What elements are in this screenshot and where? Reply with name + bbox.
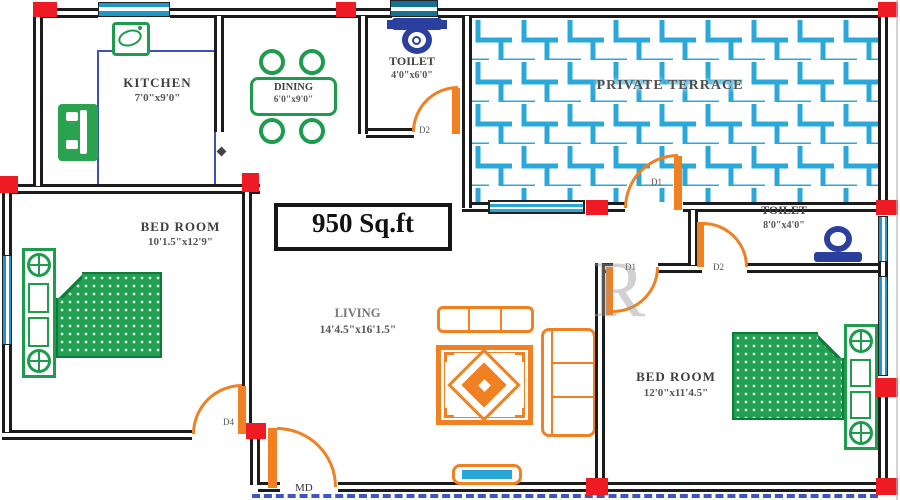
wall-junction-marker (876, 378, 898, 397)
wall-segment (747, 263, 878, 273)
wc-bowl-center (412, 36, 421, 45)
wall-segment (33, 16, 43, 186)
mattress-fold-corner (56, 272, 82, 298)
sofa-seat-line (551, 331, 553, 434)
boundary-dashed-line (252, 494, 878, 498)
living-dims: 14'4.5"x16'1.5" (293, 324, 423, 337)
wall-junction-marker (878, 2, 898, 17)
headboard-cell (850, 359, 871, 387)
door-label: D2 (712, 263, 725, 272)
bed-pillow-icon (849, 329, 873, 353)
wall-segment (462, 16, 472, 208)
wall-junction-marker (336, 2, 356, 17)
sofa-icon (437, 306, 534, 333)
sofa-cushion-divider (468, 308, 470, 331)
terrace-sliding-window (488, 200, 585, 214)
main-door-swing-arc (277, 427, 337, 487)
wc-tank-ear (387, 20, 393, 29)
living-label: LIVING (315, 307, 400, 321)
wall-segment (606, 482, 878, 492)
headboard-cell (850, 391, 871, 419)
wall-junction-marker (0, 176, 18, 193)
bedroom-right-window (878, 276, 888, 376)
wall-segment (878, 16, 888, 204)
bed-pillow-icon (27, 349, 51, 373)
image-edge (896, 0, 898, 500)
tv-screen (462, 470, 512, 479)
door-label: D2 (418, 126, 431, 135)
wall-junction-marker (876, 478, 898, 495)
wc-tank-ear (441, 20, 447, 29)
wall-segment (250, 439, 260, 485)
toilet-top-dims: 4'0"x6'0" (372, 70, 452, 81)
rug-corner-bracket (444, 408, 454, 418)
kitchen-dims: 7'0"x9'0" (100, 92, 215, 104)
wc-bowl-icon (824, 226, 852, 252)
wall-junction-marker (586, 200, 608, 215)
wall-segment (214, 16, 224, 132)
dining-dims: 6'0"x9'0" (252, 95, 335, 105)
toilet-top-label: TOILET (372, 55, 452, 68)
rug-corner-bracket (515, 352, 525, 362)
wall-segment (2, 192, 12, 256)
door-label: D1 (650, 178, 663, 187)
wall-segment (606, 202, 625, 212)
bedroom-left-window (2, 255, 12, 345)
kitchen-window (98, 2, 170, 17)
mattress-fold-corner (818, 332, 844, 358)
bedroom-left-label: BED ROOM (118, 220, 243, 234)
sofa-cushion-divider (500, 308, 502, 331)
kitchen-counter-line (97, 50, 216, 186)
stove-detail (80, 110, 87, 154)
marker-dot (217, 147, 227, 157)
dining-chair-icon (299, 49, 325, 75)
wall-segment (358, 16, 368, 134)
toilet-right-window (878, 216, 888, 262)
wall-junction-marker (242, 173, 259, 192)
headboard-cell (28, 317, 49, 347)
stove-detail (66, 140, 78, 149)
dining-chair-icon (259, 49, 285, 75)
toilet-top-window (390, 0, 438, 17)
kitchen-stove-icon (58, 104, 98, 161)
wall-segment (2, 344, 12, 432)
wall-segment (438, 8, 878, 18)
bed-pillow-icon (27, 253, 51, 277)
dining-label: DINING (252, 82, 335, 94)
bedroom-left-dims: 10'1.5"x12'9" (118, 236, 243, 248)
area-label: 950 Sq.ft (274, 209, 452, 239)
rug-corner-bracket (515, 408, 525, 418)
sofa-cushion-divider (553, 396, 594, 398)
watermark: R (592, 250, 645, 330)
toilet-right-dims: 8'0"x4'0" (742, 220, 826, 231)
wall-junction-marker (33, 2, 57, 17)
dining-chair-icon (259, 118, 285, 144)
wall-junction-marker (586, 478, 608, 495)
dining-chair-icon (299, 118, 325, 144)
headboard-cell (28, 283, 49, 313)
door-label: D4 (222, 418, 235, 427)
wall-segment (2, 430, 192, 440)
bedroom-right-dims: 12'0"x11'4.5" (616, 387, 736, 399)
main-door-leaf (268, 428, 277, 488)
bedroom-right-label: BED ROOM (616, 370, 736, 384)
floor-plan: D2 D1 D1 D2 D4 MD KITCHEN 7'0"x9'0" DINI… (0, 0, 900, 500)
bed-pillow-icon (849, 421, 873, 445)
toilet-right-label: TOILET (742, 204, 826, 217)
stove-detail (66, 112, 78, 121)
wall-segment (878, 396, 888, 482)
sofa-cushion-divider (553, 362, 594, 364)
terrace-label: PRIVATE TERRACE (560, 78, 780, 93)
wall-junction-marker (246, 423, 266, 439)
wall-junction-marker (876, 200, 898, 215)
sink-tap-dot (138, 26, 142, 30)
rug-corner-bracket (444, 352, 454, 362)
wall-segment (366, 128, 414, 138)
main-door-label: MD (294, 483, 314, 494)
sofa-icon (541, 328, 596, 437)
wc-tank (814, 252, 862, 262)
kitchen-label: KITCHEN (100, 76, 215, 90)
